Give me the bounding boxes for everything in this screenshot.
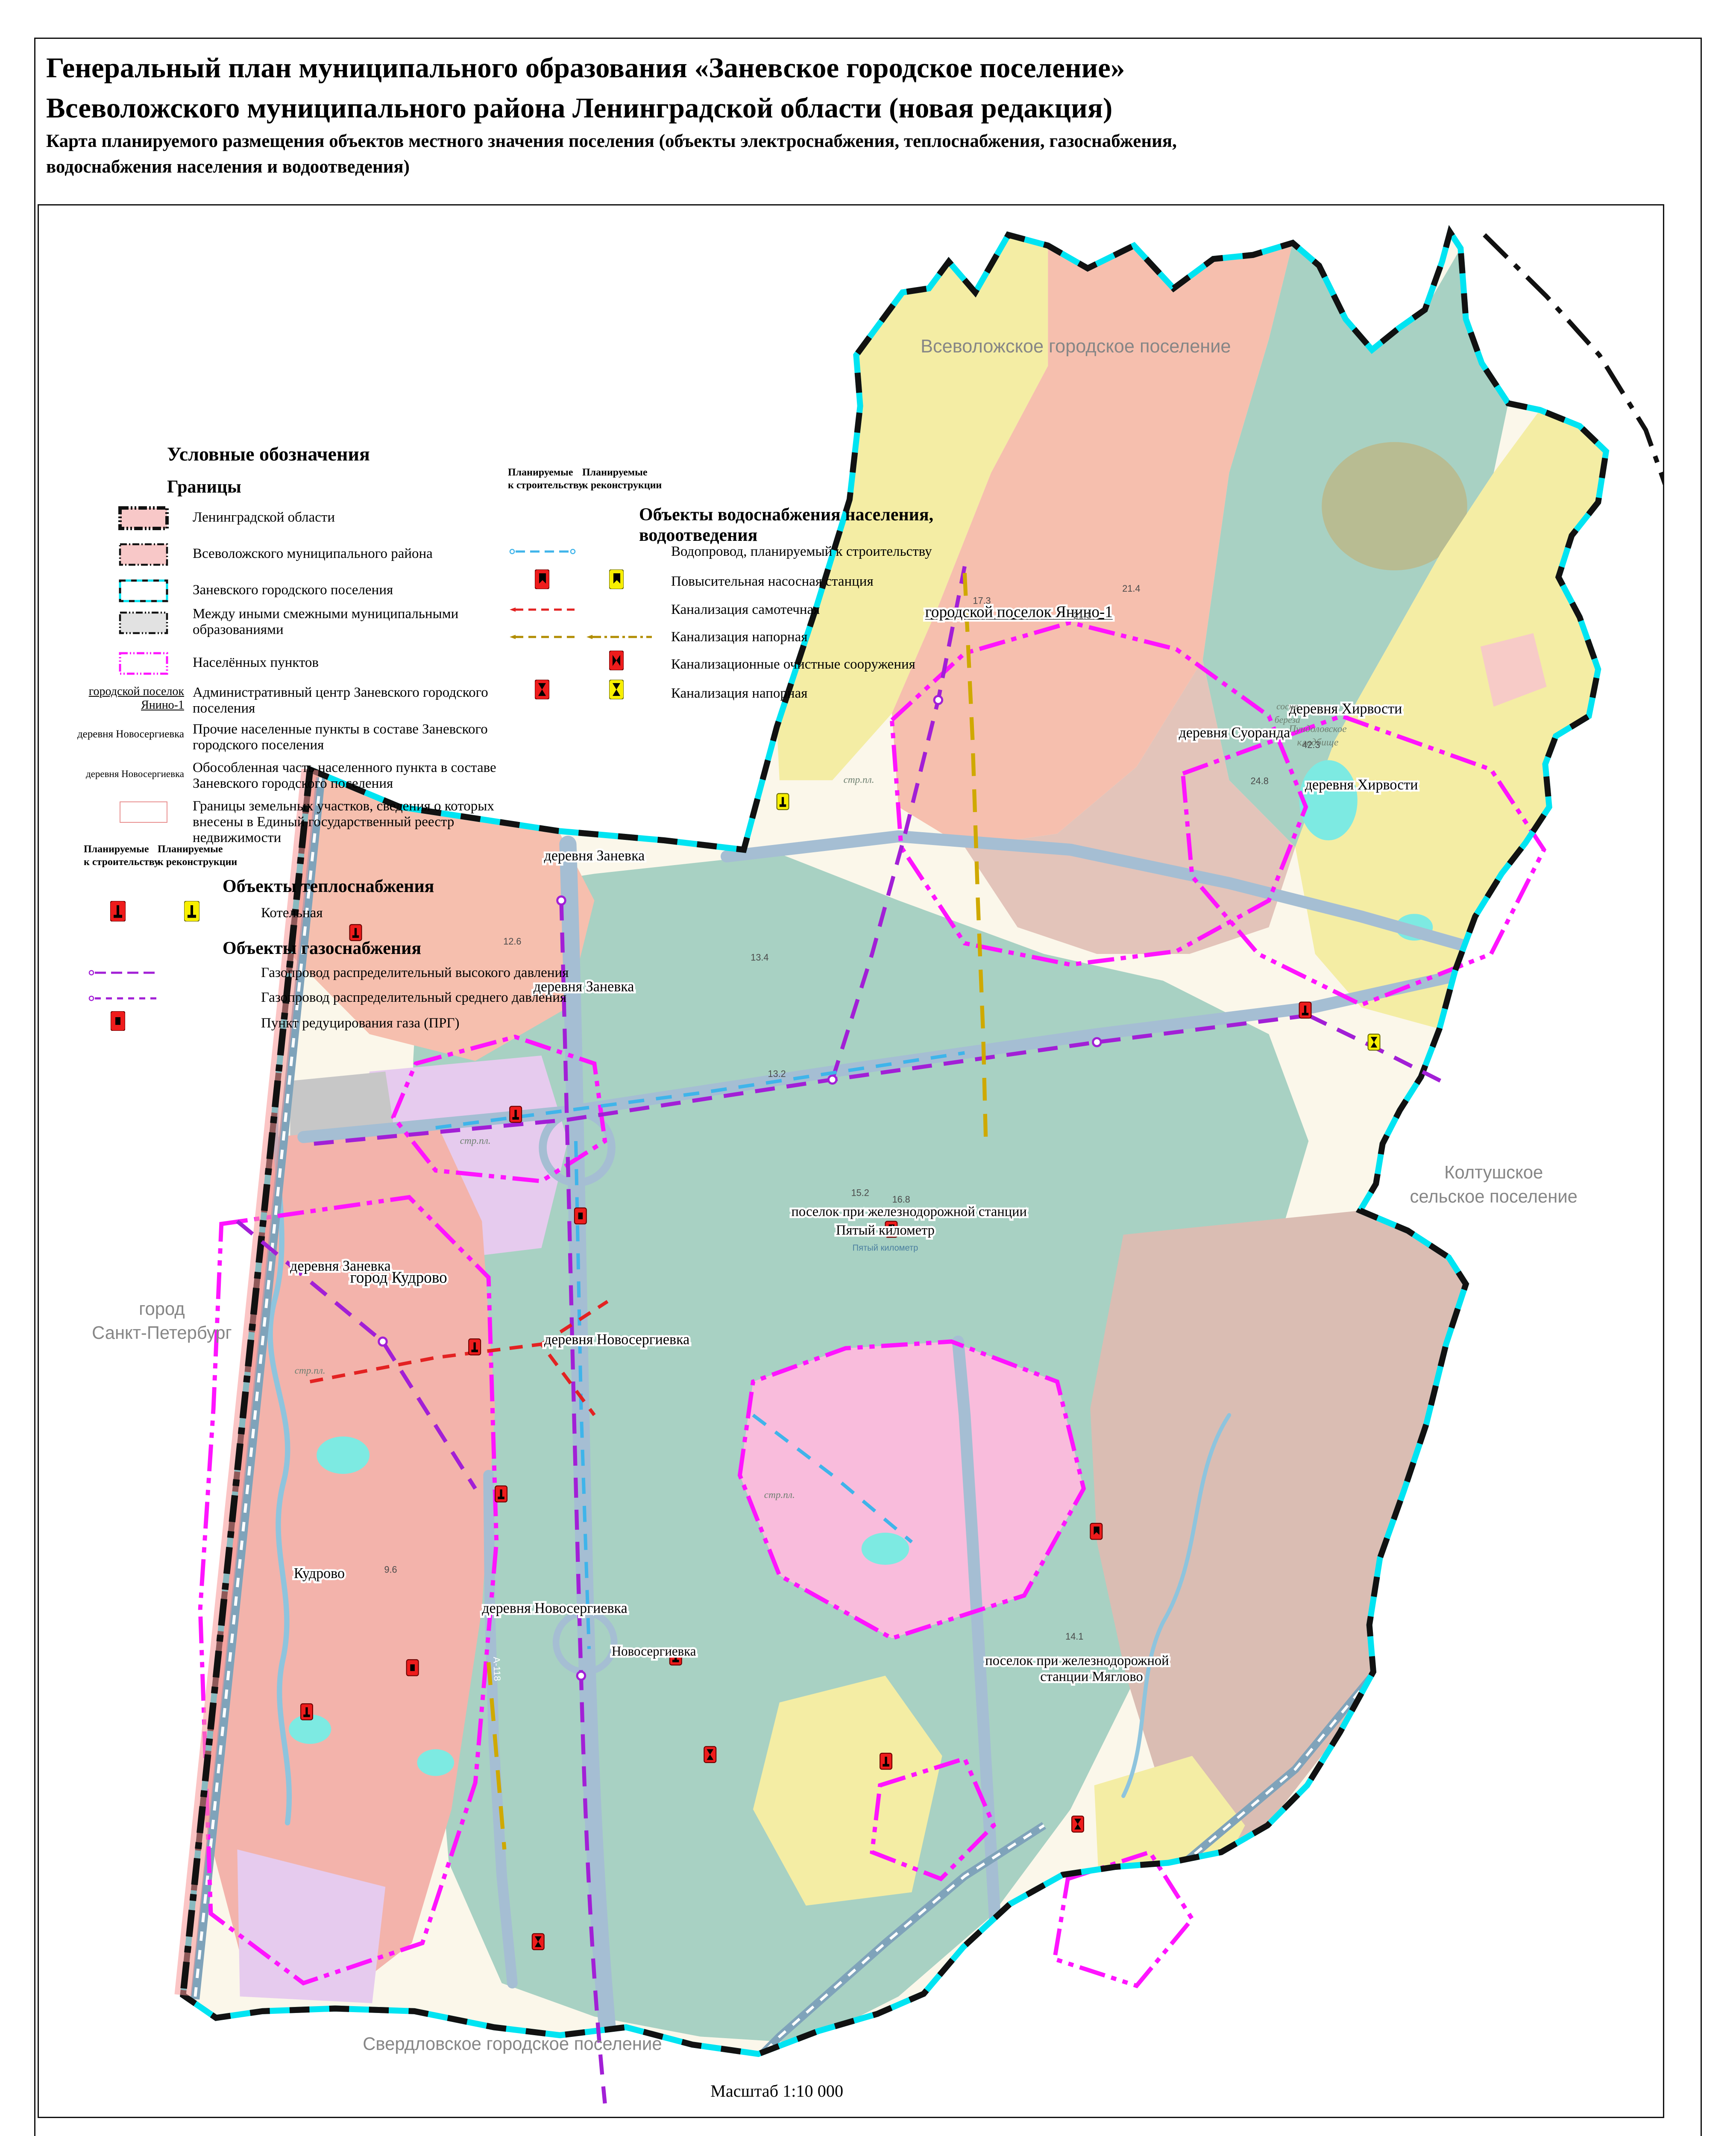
legend-label-settlements: Населённых пунктов (193, 655, 530, 671)
neighbor-label-east-2: сельское поселение (1410, 1186, 1577, 1206)
station-label: Пятый километр (853, 1244, 918, 1253)
swatch-zanevskoe-boundary (116, 577, 171, 604)
place-label-hirvosti-2: деревня Хирвости (1305, 777, 1418, 793)
water-section-heading: Объекты водоснабжения населения, водоотв… (639, 505, 1009, 546)
map-frame: Всеволожское городское поселение Колтушс… (38, 204, 1664, 2118)
legend-label-zanevskoe: Заневского городского поселения (193, 582, 530, 598)
place-label-myaglovo-1: поселок при железнодорожной (985, 1653, 1169, 1668)
legend-label-admin-center: Административный центр Заневского городс… (193, 685, 530, 716)
legend-label-treatment: Канализационные очистные сооружения (671, 657, 915, 672)
sewer-pump-symbol (532, 1934, 544, 1950)
legend-label-lenoblast: Ленинградской области (193, 510, 530, 525)
road-label-a118: А-118 (491, 1657, 503, 1681)
place-label-novosergievka-2: деревня Новосергиевка (482, 1600, 627, 1616)
column-header-reconstruction: Планируемые к реконструкции (158, 843, 252, 868)
water-pump-symbol (1090, 1523, 1102, 1540)
legend-boiler-reconstruction-icon (166, 901, 217, 921)
place-label-suoranda: деревня Суоранда (1179, 725, 1290, 741)
place-label-kudrovo-city: город Кудрово (350, 1269, 447, 1287)
water-column-header-reconstruction: Планируемые к реконструкции (582, 466, 676, 492)
legend-label-prg: Пункт редуцирования газа (ПРГ) (261, 1015, 459, 1031)
place-label-5km-1: поселок при железнодорожной станции (792, 1204, 1027, 1219)
prg-symbol (407, 1660, 419, 1676)
swatch-district-boundary (116, 541, 171, 568)
note-pine: сосна (1276, 701, 1298, 711)
place-label-kudrovo: Кудрово (294, 1565, 345, 1581)
legend-label-egrn: Границы земельных участков, сведения о к… (193, 798, 530, 846)
place-label-novosergievka-1: деревня Новосергиевка (544, 1331, 689, 1347)
title-block: Генеральный план муниципального образова… (46, 48, 1652, 179)
legend-pump-reconstruction-icon (591, 569, 642, 589)
legend-symbol-other-settlements: деревня Новосергиевка (69, 728, 184, 741)
page-subtitle-line2: водоснабжения населения и водоотведения) (46, 155, 1652, 179)
legend-label-district: Всеволожского муниципального района (193, 546, 530, 562)
page-subtitle-line1: Карта планируемого размещения объектов м… (46, 129, 1652, 154)
boiler-symbol (469, 1339, 481, 1355)
boiler-symbol (1299, 1002, 1311, 1018)
legend: Условные обозначения Границы Ленинградск… (43, 210, 1009, 1030)
boiler-symbol (301, 1704, 313, 1720)
elevation-mark: 21.4 (1122, 583, 1140, 594)
legend-label-pump-station: Повысительная насосная станция (671, 574, 874, 590)
legend-gas-high-line-icon (88, 969, 161, 978)
page-title-line1: Генеральный план муниципального образова… (46, 48, 1652, 88)
sewer-pump-symbol (1072, 1816, 1084, 1832)
prg-symbol (575, 1208, 586, 1224)
legend-sewer-pressure-construction-icon (509, 634, 581, 643)
elevation-mark: 24.8 (1251, 776, 1269, 786)
legend-sewer-pressure-reconstruction-icon (586, 634, 658, 643)
swatch-adjacent-boundary (116, 609, 171, 637)
sewer-pump-recon-symbol (1368, 1034, 1380, 1050)
page-title-line2: Всеволожского муниципального района Лени… (46, 88, 1652, 128)
legend-label-sewer-gravity: Канализация самотечная (671, 602, 820, 618)
heat-section-heading: Объекты теплоснабжения (223, 876, 434, 897)
place-label-novosergievka-3: Новосергиевка (612, 1643, 696, 1658)
elevation-mark: 14.1 (1065, 1631, 1083, 1642)
legend-sewer-gravity-icon (509, 606, 581, 615)
legend-kns-reconstruction-icon (591, 680, 642, 699)
note-constr-3: стр.пл. (295, 1365, 325, 1376)
elevation-mark: 9.6 (384, 1564, 397, 1575)
neighbor-label-west-1: город (139, 1299, 185, 1319)
legend-label-detached-part: Обособленная часть населенного пункта в … (193, 760, 530, 792)
legend-label-sewer-pressure-point: Канализация напорная (671, 686, 807, 701)
legend-heading: Условные обозначения (167, 443, 370, 465)
legend-boundaries-heading: Границы (167, 477, 241, 497)
legend-treatment-icon (591, 651, 642, 670)
legend-label-boiler: Котельная (261, 905, 323, 921)
legend-water-line-icon (509, 548, 581, 557)
legend-label-gas-high: Газопровод распределительный высокого да… (261, 965, 569, 981)
legend-kns-construction-icon (516, 680, 568, 699)
legend-boiler-construction-icon (92, 901, 144, 921)
scale-label: Масштаб 1:10 000 (710, 2081, 843, 2101)
boiler-symbol (495, 1486, 507, 1502)
note-cemetery-1: Пундоловское (1288, 724, 1346, 735)
boiler-symbol (510, 1106, 522, 1123)
legend-gas-mid-line-icon (88, 995, 161, 1004)
legend-label-other-settlements: Прочие населенные пункты в составе Занев… (193, 722, 530, 753)
legend-symbol-admin-center: городской поселок Янино-1 (69, 685, 184, 712)
legend-label-gas-mid: Газопровод распределительный среднего да… (261, 990, 566, 1006)
legend-pump-construction-icon (516, 569, 568, 589)
neighbor-label-west-2: Санкт-Петербург (92, 1323, 232, 1343)
elevation-mark: 13.2 (768, 1068, 786, 1079)
legend-symbol-detached-part: деревня Новосергиевка (69, 767, 184, 781)
swatch-settlement-boundary (116, 650, 171, 677)
gas-section-heading: Объекты газоснабжения (223, 938, 421, 959)
genplan-sheet: Генеральный план муниципального образова… (0, 0, 1736, 2136)
swatch-egrn-parcels (116, 798, 171, 826)
note-constr-4: стр.пл. (764, 1489, 795, 1500)
place-label-5km-2: Пятый километр (836, 1223, 935, 1238)
place-label-myaglovo-2: станции Мяглово (1040, 1669, 1143, 1684)
legend-label-sewer-pressure-line: Канализация напорная (671, 629, 807, 645)
note-birch: береза (1275, 715, 1300, 725)
place-label-hirvosti-1: деревня Хирвости (1289, 701, 1402, 717)
legend-label-adjacent: Между иными смежными муниципальными обра… (193, 606, 530, 638)
neighbor-label-east-1: Колтушское (1444, 1162, 1543, 1182)
elevation-mark: 21.3 (1073, 610, 1091, 621)
sewer-pump-symbol (704, 1746, 716, 1763)
boiler-symbol (880, 1753, 892, 1769)
legend-prg-icon (92, 1011, 144, 1031)
elevation-mark: 15.2 (851, 1187, 869, 1198)
elevation-mark: 16.8 (892, 1194, 910, 1205)
neighbor-label-south: Свердловское городское поселение (363, 2033, 662, 2054)
legend-label-waterline: Водопровод, планируемый к строительству (671, 544, 932, 560)
swatch-lenoblast-boundary (116, 505, 171, 532)
note-constr-2: стр.пл. (460, 1135, 491, 1146)
elevation-mark: 42.3 (1302, 739, 1320, 750)
